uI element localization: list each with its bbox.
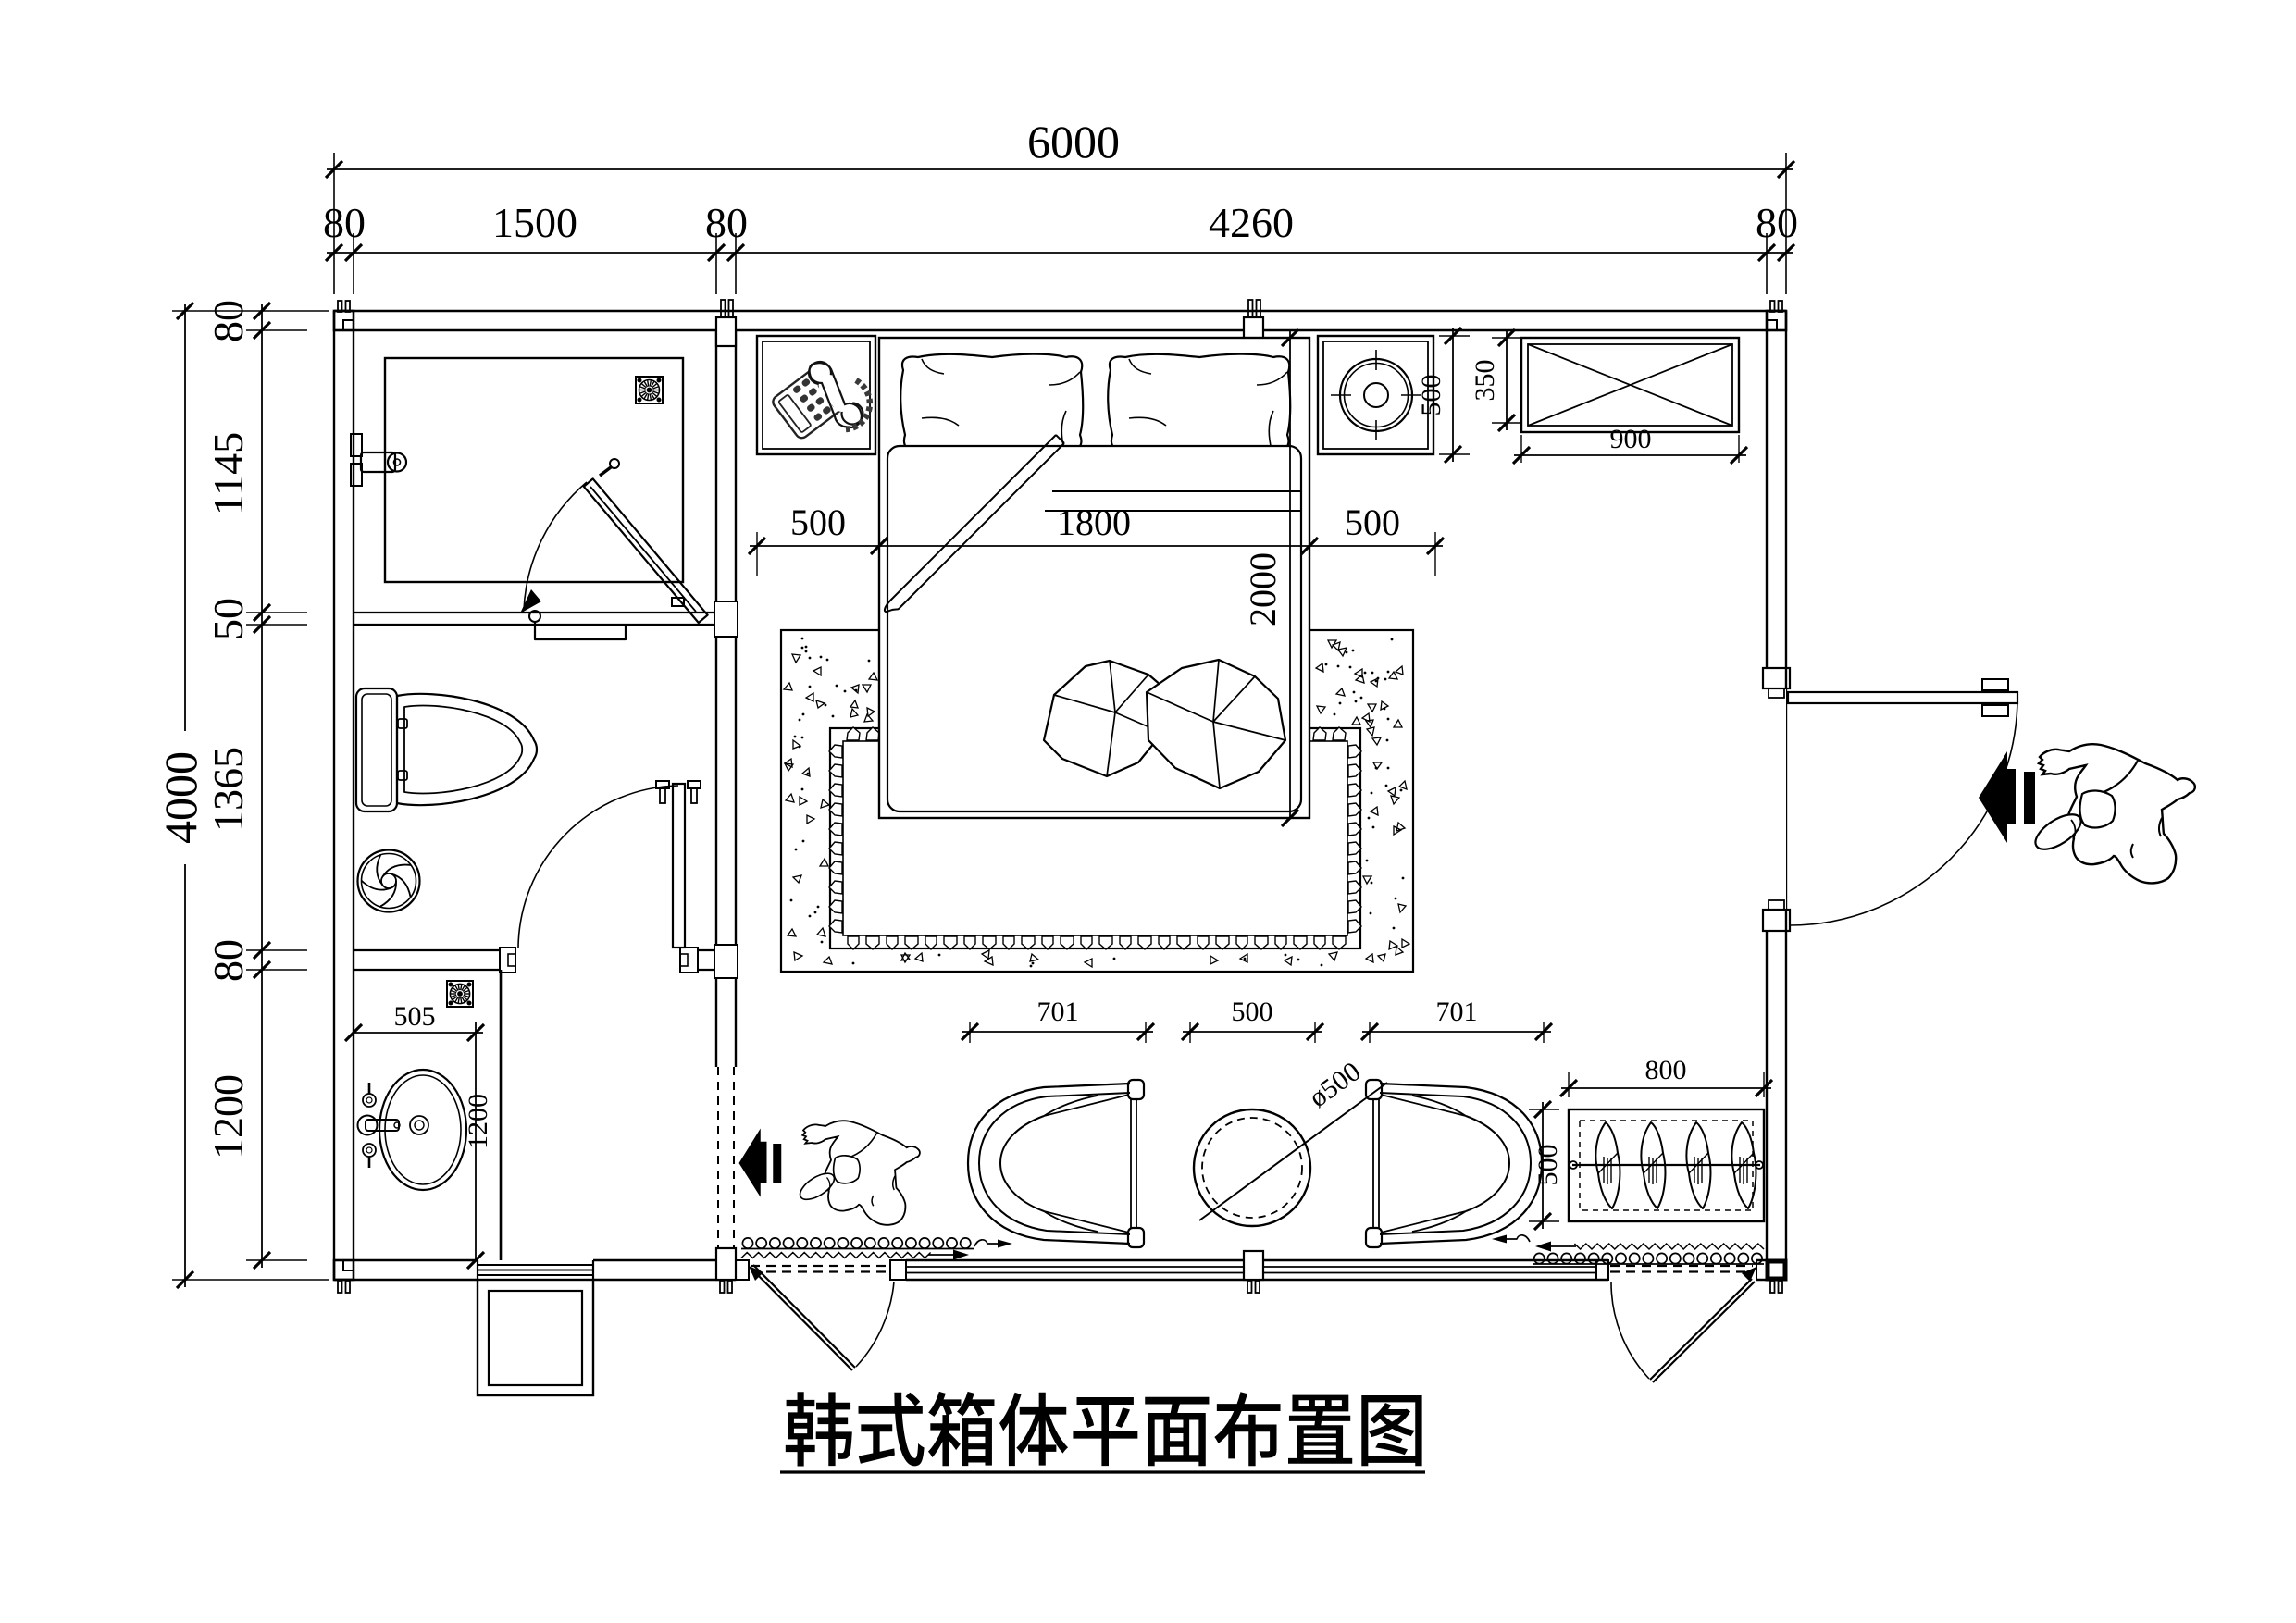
svg-text:500: 500: [1232, 997, 1273, 1027]
svg-text:6000: 6000: [1027, 116, 1120, 167]
svg-text:500: 500: [1416, 375, 1446, 416]
svg-text:80: 80: [205, 939, 252, 982]
svg-text:4260: 4260: [1209, 199, 1294, 246]
svg-text:1145: 1145: [205, 432, 252, 515]
svg-text:1800: 1800: [1057, 502, 1131, 543]
svg-text:701: 701: [1037, 997, 1079, 1027]
svg-text:500: 500: [790, 502, 846, 543]
svg-text:80: 80: [205, 300, 252, 342]
svg-text:80: 80: [1756, 199, 1798, 246]
svg-text:1365: 1365: [205, 747, 252, 832]
svg-text:500: 500: [1533, 1145, 1563, 1186]
svg-text:1200: 1200: [463, 1094, 493, 1149]
svg-text:800: 800: [1645, 1055, 1687, 1085]
svg-text:701: 701: [1436, 997, 1478, 1027]
svg-text:80: 80: [705, 199, 748, 246]
svg-text:350: 350: [1470, 360, 1500, 402]
svg-text:50: 50: [205, 598, 252, 640]
svg-text:2000: 2000: [1242, 552, 1284, 626]
svg-text:1200: 1200: [205, 1074, 252, 1159]
svg-text:4000: 4000: [155, 751, 206, 844]
svg-text:900: 900: [1610, 424, 1652, 454]
svg-text:1500: 1500: [492, 199, 577, 246]
svg-text:505: 505: [394, 1001, 436, 1032]
svg-text:500: 500: [1345, 502, 1400, 543]
svg-text:80: 80: [323, 199, 366, 246]
